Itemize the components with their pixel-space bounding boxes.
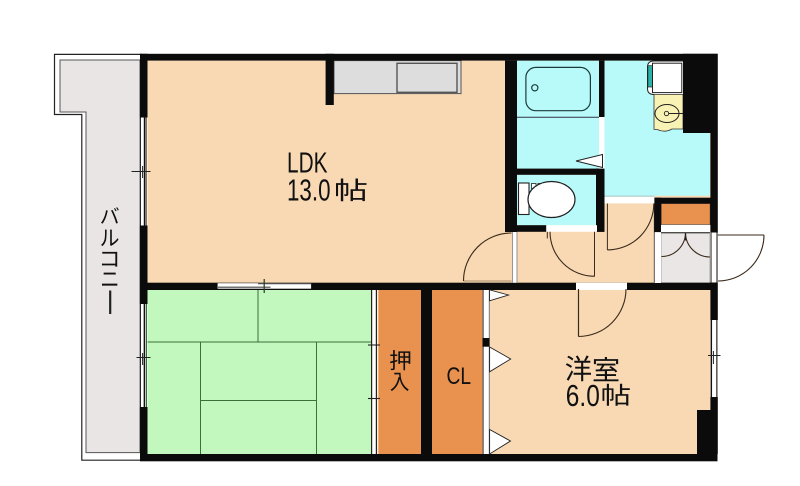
svg-text:CL: CL [447,363,472,390]
svg-text:13.0: 13.0 [287,173,331,208]
svg-text:6.0: 6.0 [566,379,600,413]
